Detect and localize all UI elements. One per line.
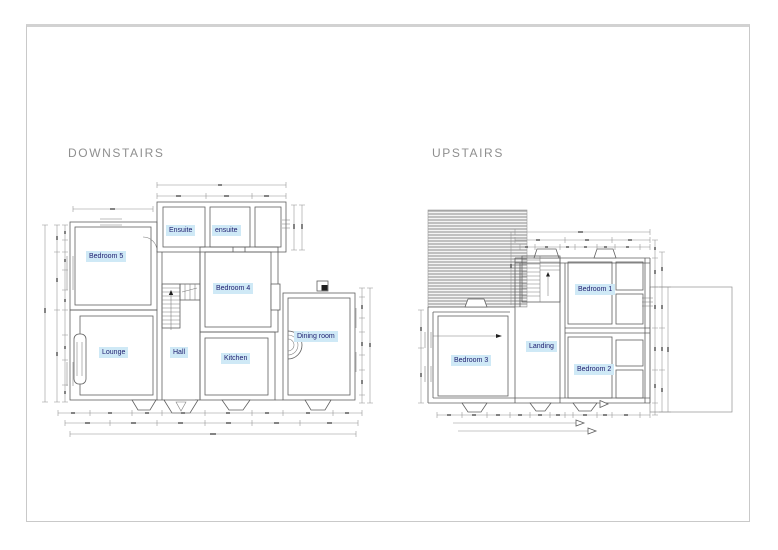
room-label-ensuite-2: ensuite [212,225,241,236]
upstairs-openings [453,401,608,435]
room-label-hall: Hall [170,347,188,358]
bay-window [74,334,86,384]
stair-direction-arrow [169,290,173,295]
leader-arrow [588,428,596,434]
drawing-sheet: DOWNSTAIRS UPSTAIRS Ensuite ensuite Bedr… [0,0,778,550]
upstairs-title: UPSTAIRS [432,146,504,160]
roof-hatch [428,210,527,307]
downstairs-plan [42,182,373,437]
upstairs-plan [418,210,732,434]
downstairs-left-block [67,219,157,400]
downstairs-hall [143,237,283,400]
stair-direction-arrow [546,272,550,277]
chimney-breast [271,284,280,310]
room-label-dining-room: Dining room [294,331,338,342]
room-label-landing: Landing [526,341,557,352]
downstairs-middle-block [200,247,280,400]
room-label-ensuite-1: Ensuite [166,225,195,236]
chimney-icon [317,281,328,291]
room-label-bedroom-2: Bedroom 2 [574,364,614,375]
room-label-kitchen: Kitchen [221,353,250,364]
floor-plan-drawing [0,0,778,550]
room-label-bedroom-1: Bedroom 1 [575,284,615,295]
leader-arrow [576,420,584,426]
room-label-bedroom-4: Bedroom 4 [213,283,253,294]
room-label-bedroom-3: Bedroom 3 [451,355,491,366]
room-label-lounge: Lounge [99,347,128,358]
leader-arrow [600,401,608,408]
downstairs-dimensions [42,182,373,437]
door-swing-arc [143,237,157,251]
stairs-downstairs [162,284,200,330]
beam-arrow [496,334,502,338]
downstairs-title: DOWNSTAIRS [68,146,164,160]
room-label-bedroom-5: Bedroom 5 [86,251,126,262]
